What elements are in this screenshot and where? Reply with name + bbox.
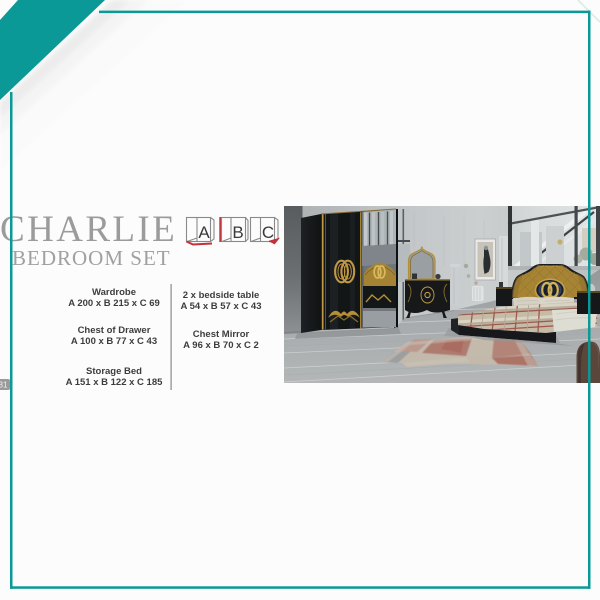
svg-text:31: 31 — [0, 381, 8, 390]
